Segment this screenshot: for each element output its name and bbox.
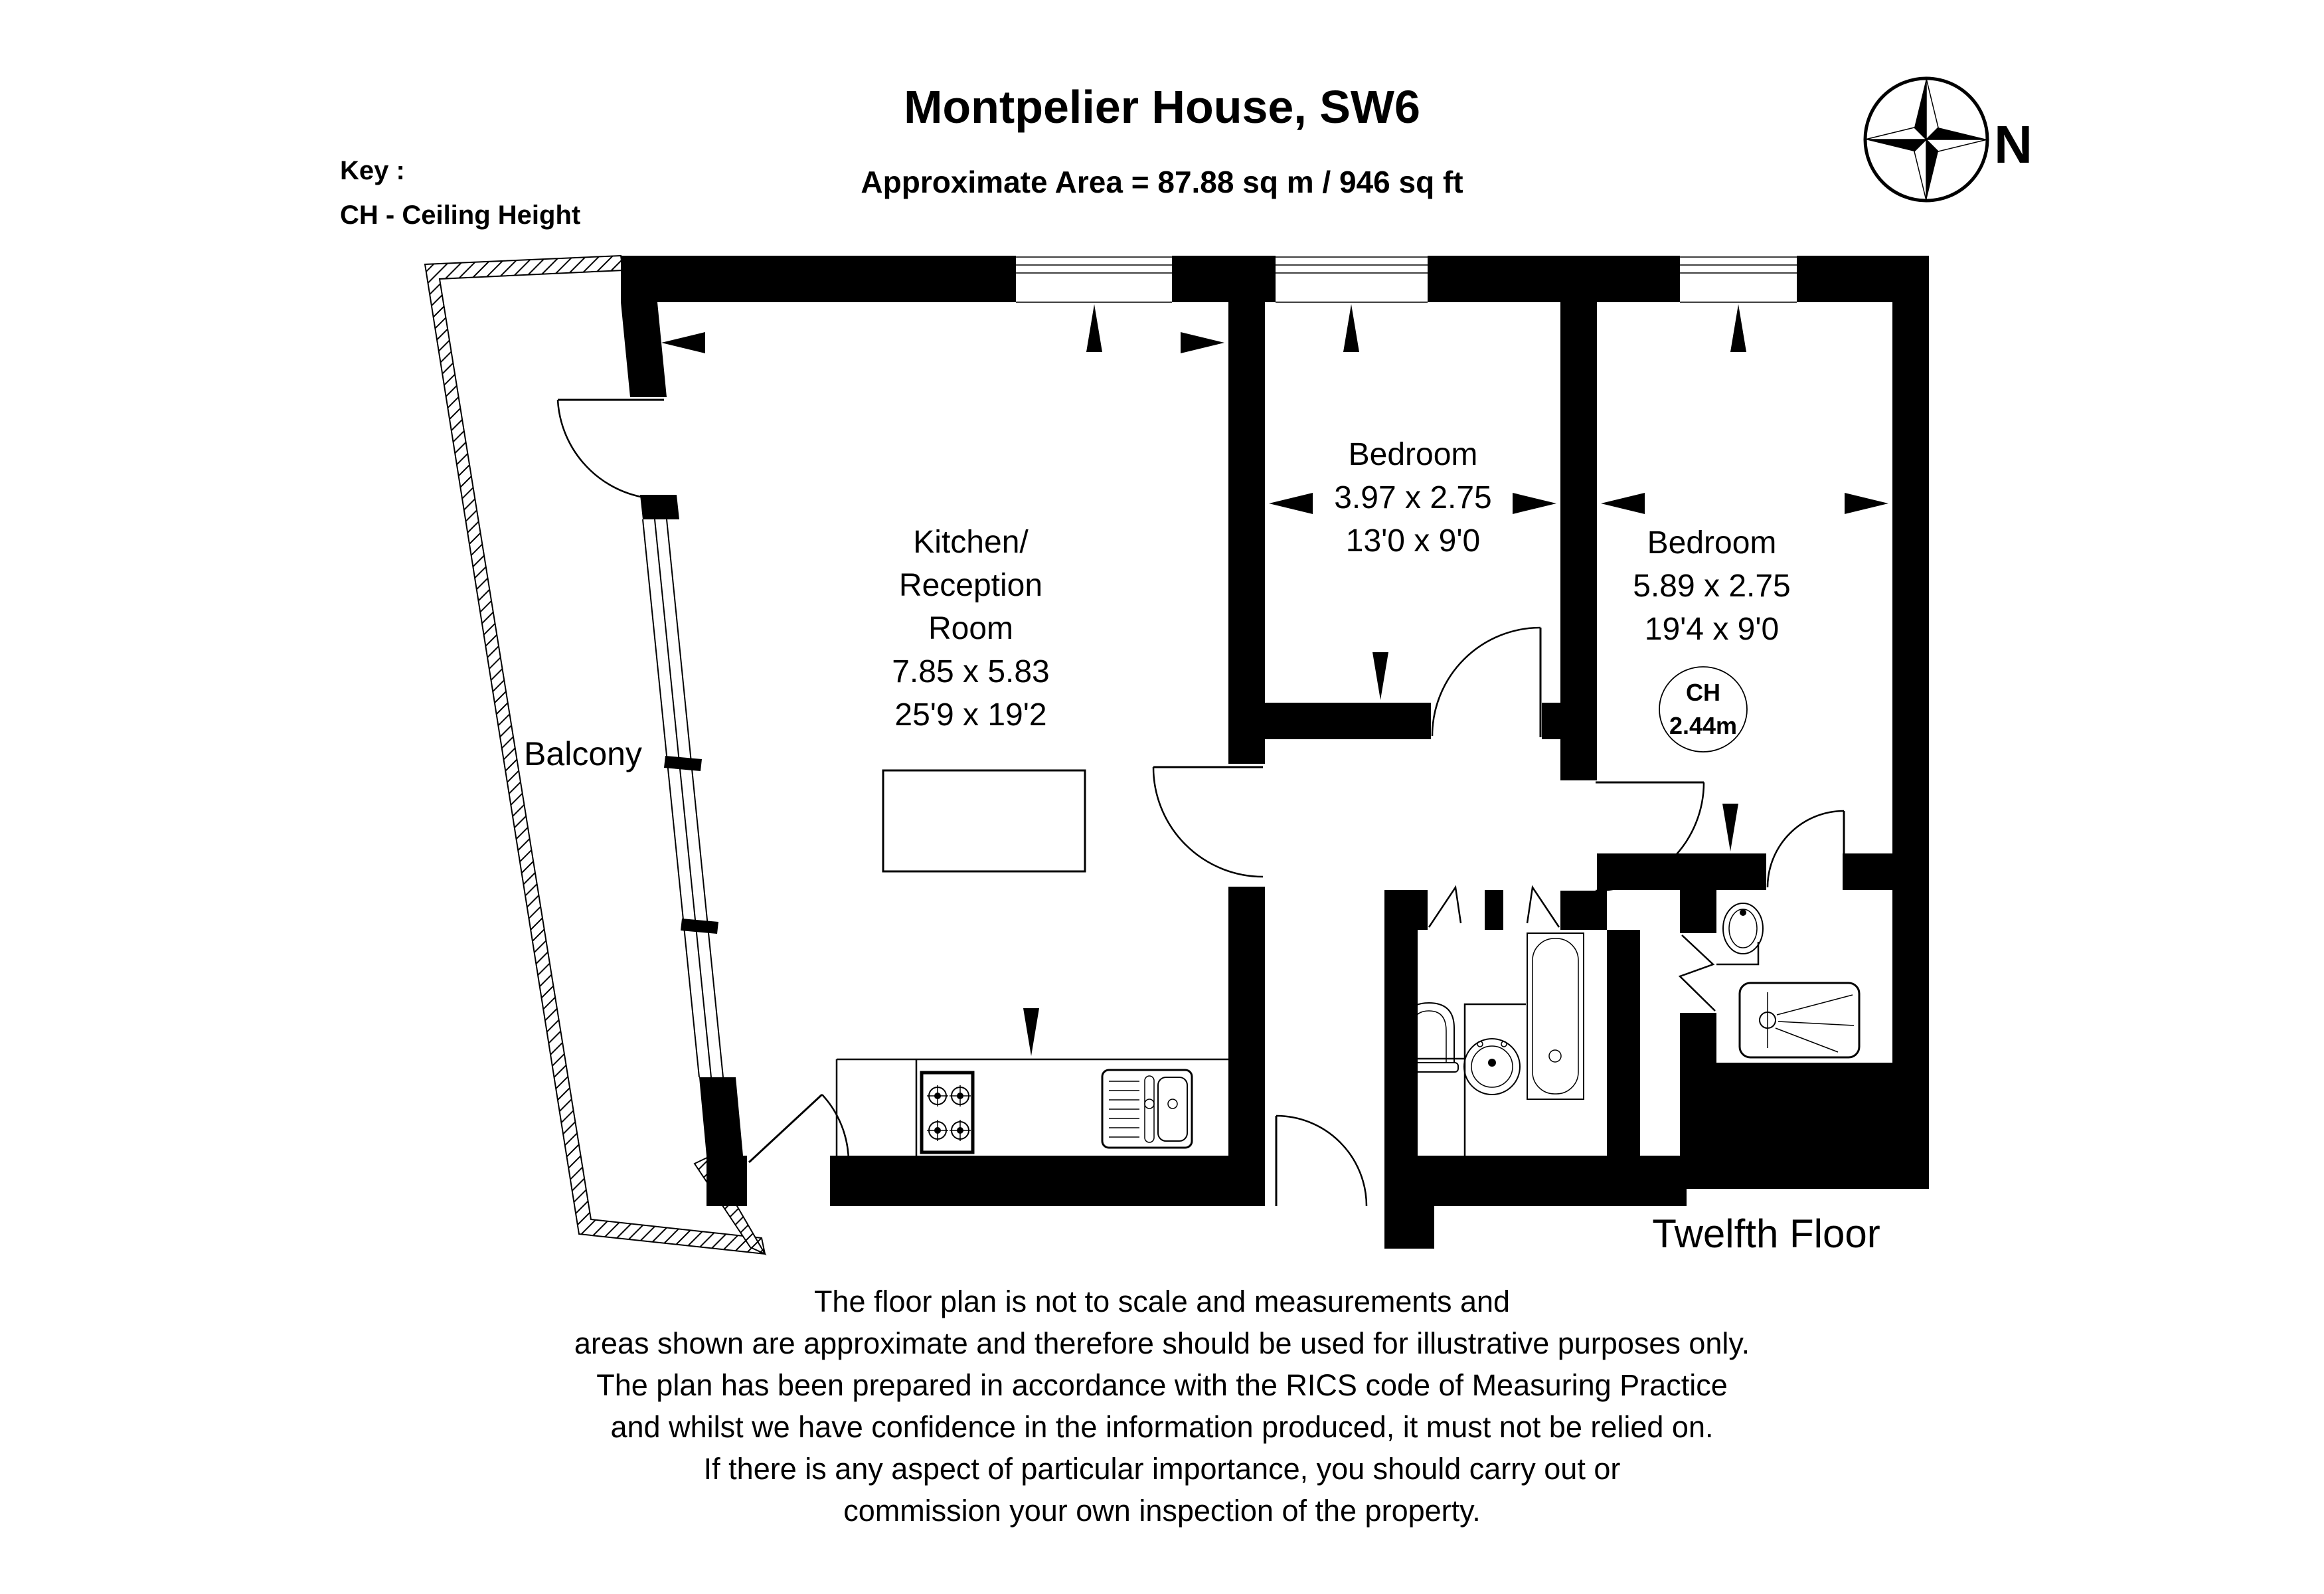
arrow-up-kitchen-window (1086, 304, 1102, 352)
arrow-down-kitchen (1023, 1008, 1039, 1056)
floor-level-label: Twelfth Floor (1652, 1211, 1880, 1256)
key-heading: Key : (340, 156, 405, 185)
kitchen-sink-icon (1102, 1070, 1192, 1148)
arrow-right-bedroom1 (1513, 493, 1556, 514)
bedroom2-dim-imperial: 19'4 x 9'0 (1645, 612, 1779, 647)
disclaimer: The floor plan is not to scale and measu… (574, 1284, 1750, 1528)
wall-ensuite-left-lower (1680, 1013, 1716, 1189)
door-bathroom-bifold-right-icon (1527, 887, 1559, 927)
disclaimer-line: commission your own inspection of the pr… (843, 1494, 1481, 1528)
floor-plan-svg: Montpelier House, SW6 Approximate Area =… (0, 0, 2324, 1594)
door-balcony-lower-icon (749, 1095, 849, 1162)
area-label: Approximate Area = 87.88 sq m / 946 sq f… (861, 165, 1463, 199)
arrow-down-bedroom1 (1372, 652, 1388, 700)
disclaimer-line: The plan has been prepared in accordance… (596, 1368, 1727, 1402)
bedroom2-name: Bedroom (1647, 525, 1777, 561)
door-bedroom1-icon (1432, 628, 1540, 737)
disclaimer-line: areas shown are approximate and therefor… (574, 1326, 1750, 1360)
ch-badge-label: CH (1686, 679, 1720, 706)
wall-kitchen-left-upper (621, 302, 667, 397)
hob-icon (922, 1073, 973, 1152)
page-title: Montpelier House, SW6 (904, 81, 1420, 133)
kitchen-dim-metric: 7.85 x 5.83 (892, 654, 1050, 689)
disclaimer-line: and whilst we have confidence in the inf… (611, 1410, 1714, 1444)
wall-bottom-kitchen (830, 1156, 1228, 1206)
kitchen-label-line3: Room (928, 611, 1013, 646)
wall-bathroom-corner (1560, 891, 1607, 930)
wall-entrance-stub (1384, 1206, 1434, 1249)
wall-bathroom-top-stub-mid (1485, 890, 1503, 930)
door-ensuite-bifold-icon (1680, 935, 1715, 1011)
arrow-right-kitchen (1181, 332, 1224, 353)
wall-vestibule-right (1384, 890, 1418, 1206)
wall-right (1892, 302, 1929, 1189)
arrow-left-bedroom2 (1601, 493, 1645, 514)
wall-ensuite-left-upper (1680, 890, 1716, 933)
wall-kitchen-left-mid (640, 495, 679, 519)
bedroom1-name: Bedroom (1349, 437, 1478, 472)
ch-badge-value: 2.44m (1669, 712, 1737, 739)
wall-kitchen-left-lower (699, 1077, 743, 1156)
arrow-down-ensuite (1722, 804, 1738, 851)
wall-bed2-bottom-left (1597, 853, 1766, 890)
window-kitchen-icon (1016, 256, 1172, 302)
wall-ensuite-bottom-mass (1716, 1063, 1929, 1189)
door-balcony-upper-icon (558, 400, 664, 497)
arrow-right-bedroom2 (1845, 493, 1888, 514)
wall-bathroom-top-stub-left (1418, 890, 1428, 930)
bathroom-basin-icon (1418, 1004, 1526, 1156)
wall-hall-left (1228, 887, 1265, 1206)
bathtub-icon (1527, 933, 1584, 1099)
arrow-up-bedroom2-window (1730, 304, 1746, 352)
balcony-glazing-icon (643, 519, 723, 1077)
kitchen-reception-label: Kitchen/ Reception Room 7.85 x 5.83 25'9… (892, 525, 1050, 733)
ceiling-height-badge: CH 2.44m (1659, 667, 1747, 752)
arrow-up-bedroom1-window (1343, 304, 1359, 352)
door-reception-icon (1153, 767, 1263, 877)
doors (558, 400, 1844, 1206)
wall-bed1-bed2 (1560, 302, 1597, 780)
ensuite-basin-icon (1716, 903, 1763, 964)
key-ceiling-height: CH - Ceiling Height (340, 201, 580, 230)
wall-bed1-bottom-stub (1542, 703, 1560, 739)
compass-icon (1865, 78, 1987, 201)
bedroom2-dim-metric: 5.89 x 2.75 (1633, 569, 1791, 604)
arrow-left-kitchen (661, 332, 705, 353)
wall-bottom-left-sliver (706, 1156, 747, 1206)
wall-kitchen-bed1 (1228, 302, 1265, 764)
wall-bed2-bottom-right (1843, 853, 1892, 890)
bedroom1-dim-metric: 3.97 x 2.75 (1334, 480, 1492, 515)
bedroom1-label: Bedroom 3.97 x 2.75 13'0 x 9'0 (1334, 437, 1492, 559)
wall-bathroom-right (1607, 930, 1640, 1156)
floorplan-page: Montpelier House, SW6 Approximate Area =… (0, 0, 2324, 1594)
window-bedroom2-icon (1680, 256, 1797, 302)
wall-bed1-bottom (1265, 703, 1431, 739)
door-ensuite-icon (1768, 811, 1844, 887)
kitchen-island (883, 770, 1085, 871)
bedroom1-dim-imperial: 13'0 x 9'0 (1346, 523, 1480, 559)
compass-north-label: N (1994, 115, 2033, 174)
disclaimer-line: The floor plan is not to scale and measu… (814, 1284, 1510, 1318)
disclaimer-line: If there is any aspect of particular imp… (704, 1452, 1621, 1486)
balcony-label: Balcony (524, 735, 642, 772)
bedroom2-label: Bedroom 5.89 x 2.75 19'4 x 9'0 (1633, 525, 1791, 647)
wall-bottom-bathroom (1418, 1156, 1687, 1206)
shower-tray-icon (1740, 983, 1859, 1057)
door-bathroom-bifold-left-icon (1429, 887, 1461, 927)
kitchen-label-line1: Kitchen/ (913, 525, 1029, 560)
arrow-left-bedroom1 (1269, 493, 1313, 514)
window-bedroom1-icon (1276, 256, 1428, 302)
door-entrance-icon (1276, 1116, 1367, 1206)
kitchen-dim-imperial: 25'9 x 19'2 (894, 697, 1046, 733)
kitchen-label-line2: Reception (899, 568, 1042, 603)
